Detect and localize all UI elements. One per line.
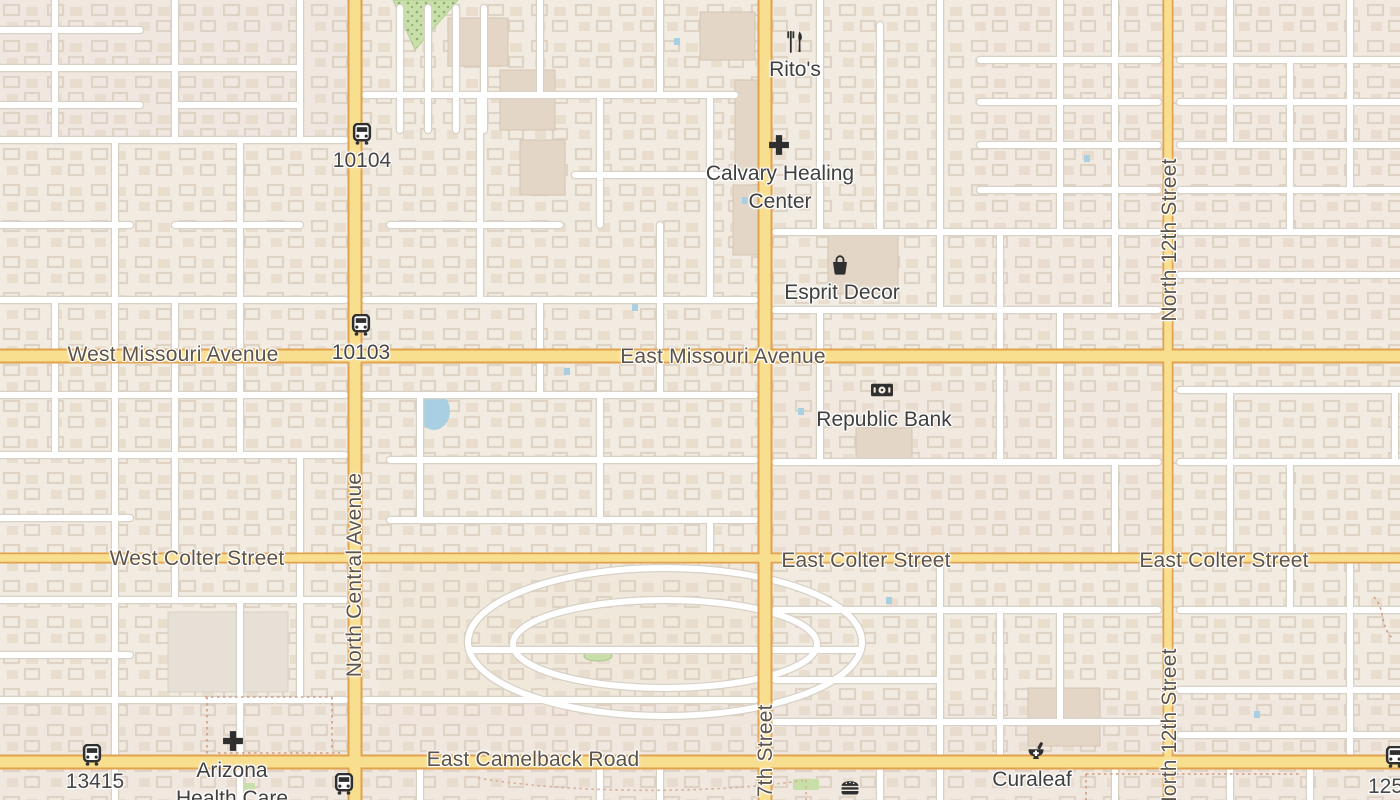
transit-stop-label-10103: 10103 [332, 341, 390, 365]
poi-label-ritos: Rito's [735, 56, 855, 84]
healthcare-cross-icon [222, 730, 245, 753]
poi-label-calvary-healing-center: Calvary Healing Center [688, 160, 873, 216]
road-label-east-camelback-road: East Camelback Road [427, 748, 640, 772]
poi-label-republic-bank: Republic Bank [799, 406, 969, 434]
poi-label-arizona-health-care: Arizona Health Care [173, 757, 291, 800]
road-label-north-12th-street-1: North 12th Street [1158, 158, 1182, 321]
healthcare-cross-icon [768, 134, 791, 157]
shopping-bag-icon [830, 255, 850, 276]
road-label-east-missouri-avenue: East Missouri Avenue [620, 345, 826, 369]
transit-stop-label-125: 125 [1368, 775, 1400, 799]
road-label-west-colter-street: West Colter Street [110, 547, 285, 571]
road-label-east-colter-street-2: East Colter Street [1139, 549, 1308, 573]
bus-icon [83, 744, 102, 766]
road-label-west-missouri-avenue: West Missouri Avenue [68, 343, 279, 367]
transit-stop-label-13415: 13415 [66, 770, 124, 794]
bus-icon [1386, 746, 1400, 768]
bus-icon [353, 123, 372, 145]
fast-food-icon [841, 781, 860, 796]
bus-icon [335, 773, 354, 795]
bus-icon [352, 314, 371, 336]
poi-label-esprit-decor: Esprit Decor [762, 279, 922, 307]
map-canvas[interactable]: West Missouri Avenue East Missouri Avenu… [0, 0, 1400, 800]
pharmacy-icon [1028, 742, 1045, 760]
transit-stop-label-10104: 10104 [333, 149, 391, 173]
poi-label-curaleaf: Curaleaf [972, 766, 1092, 794]
map-tiles [0, 0, 1400, 800]
restaurant-icon [785, 31, 805, 53]
road-label-east-colter-street-1: East Colter Street [781, 549, 950, 573]
bank-icon [871, 383, 894, 398]
road-label-north-7th-street: North 7th Street [754, 704, 778, 800]
road-label-north-central-avenue: North Central Avenue [343, 473, 367, 677]
road-label-north-12th-street-2: North 12th Street [1158, 648, 1182, 800]
